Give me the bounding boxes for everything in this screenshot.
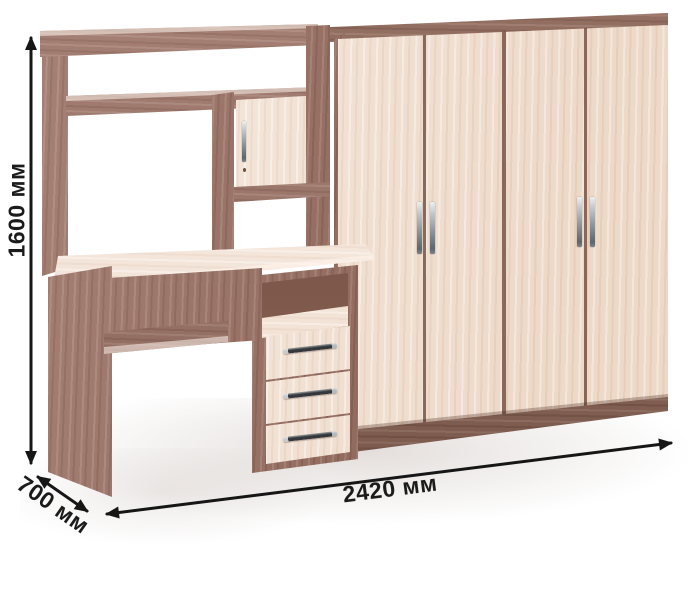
wardrobe-handle-3 [577,197,582,247]
hutch-cabinet-keyhole [243,168,246,172]
wardrobe-handle-2 [430,202,435,254]
furniture-dimension-diagram: 1600 мм 700 мм 2420 мм [0,0,700,605]
hutch-cabinet-handle [242,121,246,162]
wardrobe-handle-1 [417,202,422,254]
wardrobe-handle-4 [590,197,595,247]
height-dimension-label: 1600 мм [4,162,31,257]
